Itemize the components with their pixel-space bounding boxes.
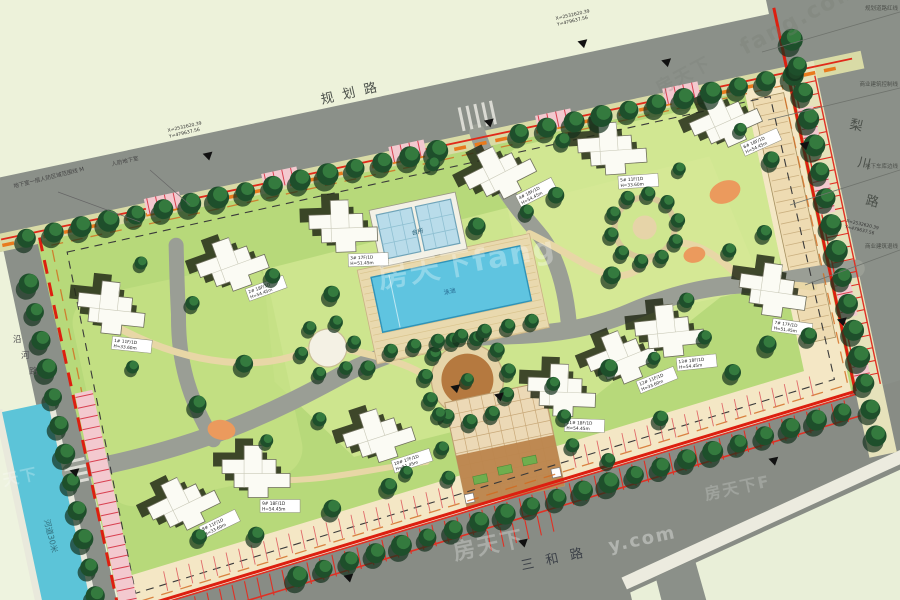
west-road-name-char: 沿 — [13, 335, 22, 345]
master-plan-drawing: 泳池 会所 — [0, 0, 900, 600]
west-road-name-char: 路 — [29, 366, 38, 377]
building-label-line1: 9# 18F/1D — [262, 501, 286, 507]
building-label-line2: H=54.45m — [566, 425, 590, 432]
site-plan-canvas: 泳池 会所 — [0, 0, 900, 600]
building-label-line2: H=54.45m — [262, 507, 285, 513]
west-road-name-char: 河 — [21, 350, 30, 361]
leader-label-4: 商业建筑退线 — [865, 242, 899, 250]
gate-post-right — [551, 467, 562, 478]
leader-label-2: 商业建筑控制线 — [859, 80, 898, 88]
building-label-line2: H=51.45m — [350, 260, 374, 267]
gate-post-left — [464, 493, 475, 504]
leader-label-1: 规划道路红线 — [865, 4, 899, 12]
